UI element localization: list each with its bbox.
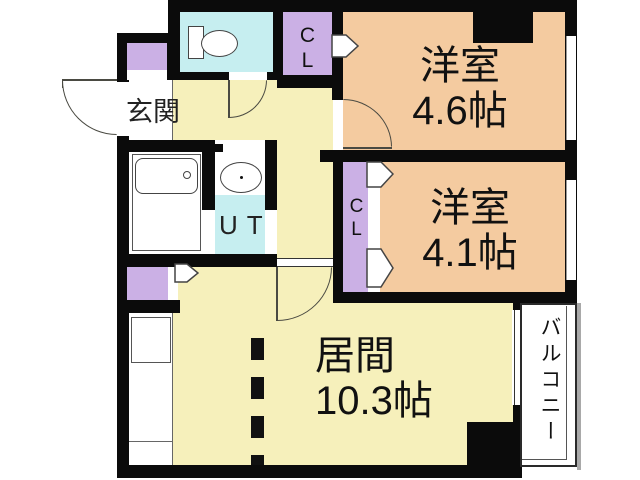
kitchen-unit: [131, 317, 171, 363]
balcony-label: バルコニー: [534, 316, 564, 446]
closet-upper-label: CL: [295, 24, 319, 74]
bath-door-gap: [202, 210, 215, 254]
pentagon-arrow-icon: [366, 161, 394, 188]
room41-size: 4.1帖: [380, 231, 560, 276]
toilet-wall-left: [168, 0, 180, 80]
bathtub-faucet-icon: [183, 171, 191, 179]
washbasin-drain-dot: [240, 176, 243, 179]
living-name: 居間: [315, 334, 433, 379]
hallway-corridor-floor: [277, 88, 333, 258]
wall-top: [168, 0, 577, 12]
wall-room41-bottom: [333, 292, 565, 303]
living-door-opening: [277, 258, 333, 267]
pillar-bottom-right: [467, 422, 513, 465]
room41-name: 洋室: [380, 186, 560, 231]
room46-door-leaf: [343, 147, 392, 149]
closet-middle-label: CL: [345, 196, 367, 242]
room46-size: 4.6帖: [370, 89, 550, 134]
room46-door-opening: [333, 100, 343, 148]
closet-upper-door-marker: [331, 34, 359, 58]
kitchen-edge-line: [172, 313, 173, 465]
basin-wall-stub: [215, 144, 223, 152]
closet-middle-wall-left: [333, 162, 343, 295]
toilet-bowl-icon: [201, 30, 238, 57]
balcony-window-line-a: [514, 310, 515, 405]
closet-lower: [127, 267, 168, 300]
closet-lower-door-marker: [174, 263, 199, 283]
ut-hall-divider: [265, 140, 277, 210]
kitchen-counter-line: [129, 441, 172, 442]
entrance-label: 玄関: [126, 90, 180, 129]
shoe-closet: [127, 43, 167, 70]
toilet-door-opening: [229, 72, 267, 80]
window-room46: [566, 36, 576, 140]
room46-label: 洋室 4.6帖: [370, 44, 550, 134]
balcony-inner-line-h: [522, 459, 567, 460]
pillar-top: [473, 12, 533, 43]
wall-room46-room41: [320, 150, 565, 162]
pentagon-arrow-icon: [174, 263, 199, 283]
balcony-outer-shadow: [577, 303, 581, 470]
entrance-door-arc: [62, 80, 117, 135]
room46-name: 洋室: [370, 44, 550, 89]
floor-plan: 玄関 洋室 4.6帖 洋室 4.1帖 居間 10.3帖 UT CL CL バルコ…: [0, 0, 640, 480]
closet-upper-wall-right-a: [332, 12, 343, 35]
utility-label: UT: [219, 210, 272, 241]
living-label: 居間 10.3帖: [315, 334, 433, 424]
toilet-cl-divider: [273, 12, 283, 75]
pentagon-arrow-icon: [331, 34, 359, 58]
wall-bottom: [117, 465, 522, 478]
window-room41: [566, 180, 576, 280]
kitchen-living-dashed-divider: [251, 338, 264, 465]
room41-label: 洋室 4.1帖: [380, 186, 560, 276]
living-size: 10.3帖: [315, 379, 433, 424]
bath-ut-divider: [202, 152, 215, 210]
closet-middle-door-marker-top: [366, 161, 394, 188]
shoe-closet-front: [127, 70, 167, 80]
bath-wall-top: [117, 140, 215, 152]
balcony-inner-line-v: [566, 306, 567, 460]
room46-wall-left-stub: [333, 88, 343, 100]
closet-lower-wall-bottom: [125, 300, 180, 313]
